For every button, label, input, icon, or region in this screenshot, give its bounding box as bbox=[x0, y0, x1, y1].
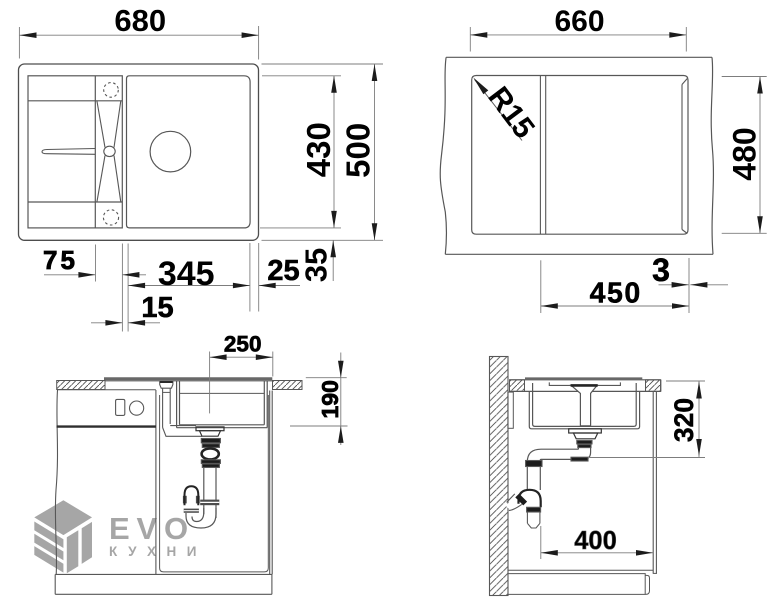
svg-text:R15: R15 bbox=[481, 81, 540, 145]
svg-text:15: 15 bbox=[141, 292, 173, 324]
svg-text:500: 500 bbox=[340, 123, 377, 178]
svg-text:250: 250 bbox=[224, 331, 262, 356]
svg-text:190: 190 bbox=[317, 380, 343, 418]
svg-text:КУХНИ: КУХНИ bbox=[109, 544, 207, 559]
svg-text:345: 345 bbox=[158, 255, 215, 293]
svg-text:320: 320 bbox=[669, 398, 699, 442]
svg-text:450: 450 bbox=[590, 278, 642, 310]
svg-text:EVO: EVO bbox=[109, 511, 195, 546]
svg-text:660: 660 bbox=[554, 5, 604, 38]
svg-text:25: 25 bbox=[267, 255, 299, 287]
svg-text:35: 35 bbox=[299, 248, 334, 282]
svg-text:430: 430 bbox=[300, 122, 337, 177]
svg-text:680: 680 bbox=[114, 3, 166, 38]
svg-text:400: 400 bbox=[574, 527, 617, 555]
svg-text:3: 3 bbox=[652, 252, 670, 288]
svg-text:75: 75 bbox=[43, 245, 78, 275]
svg-text:480: 480 bbox=[727, 127, 763, 180]
